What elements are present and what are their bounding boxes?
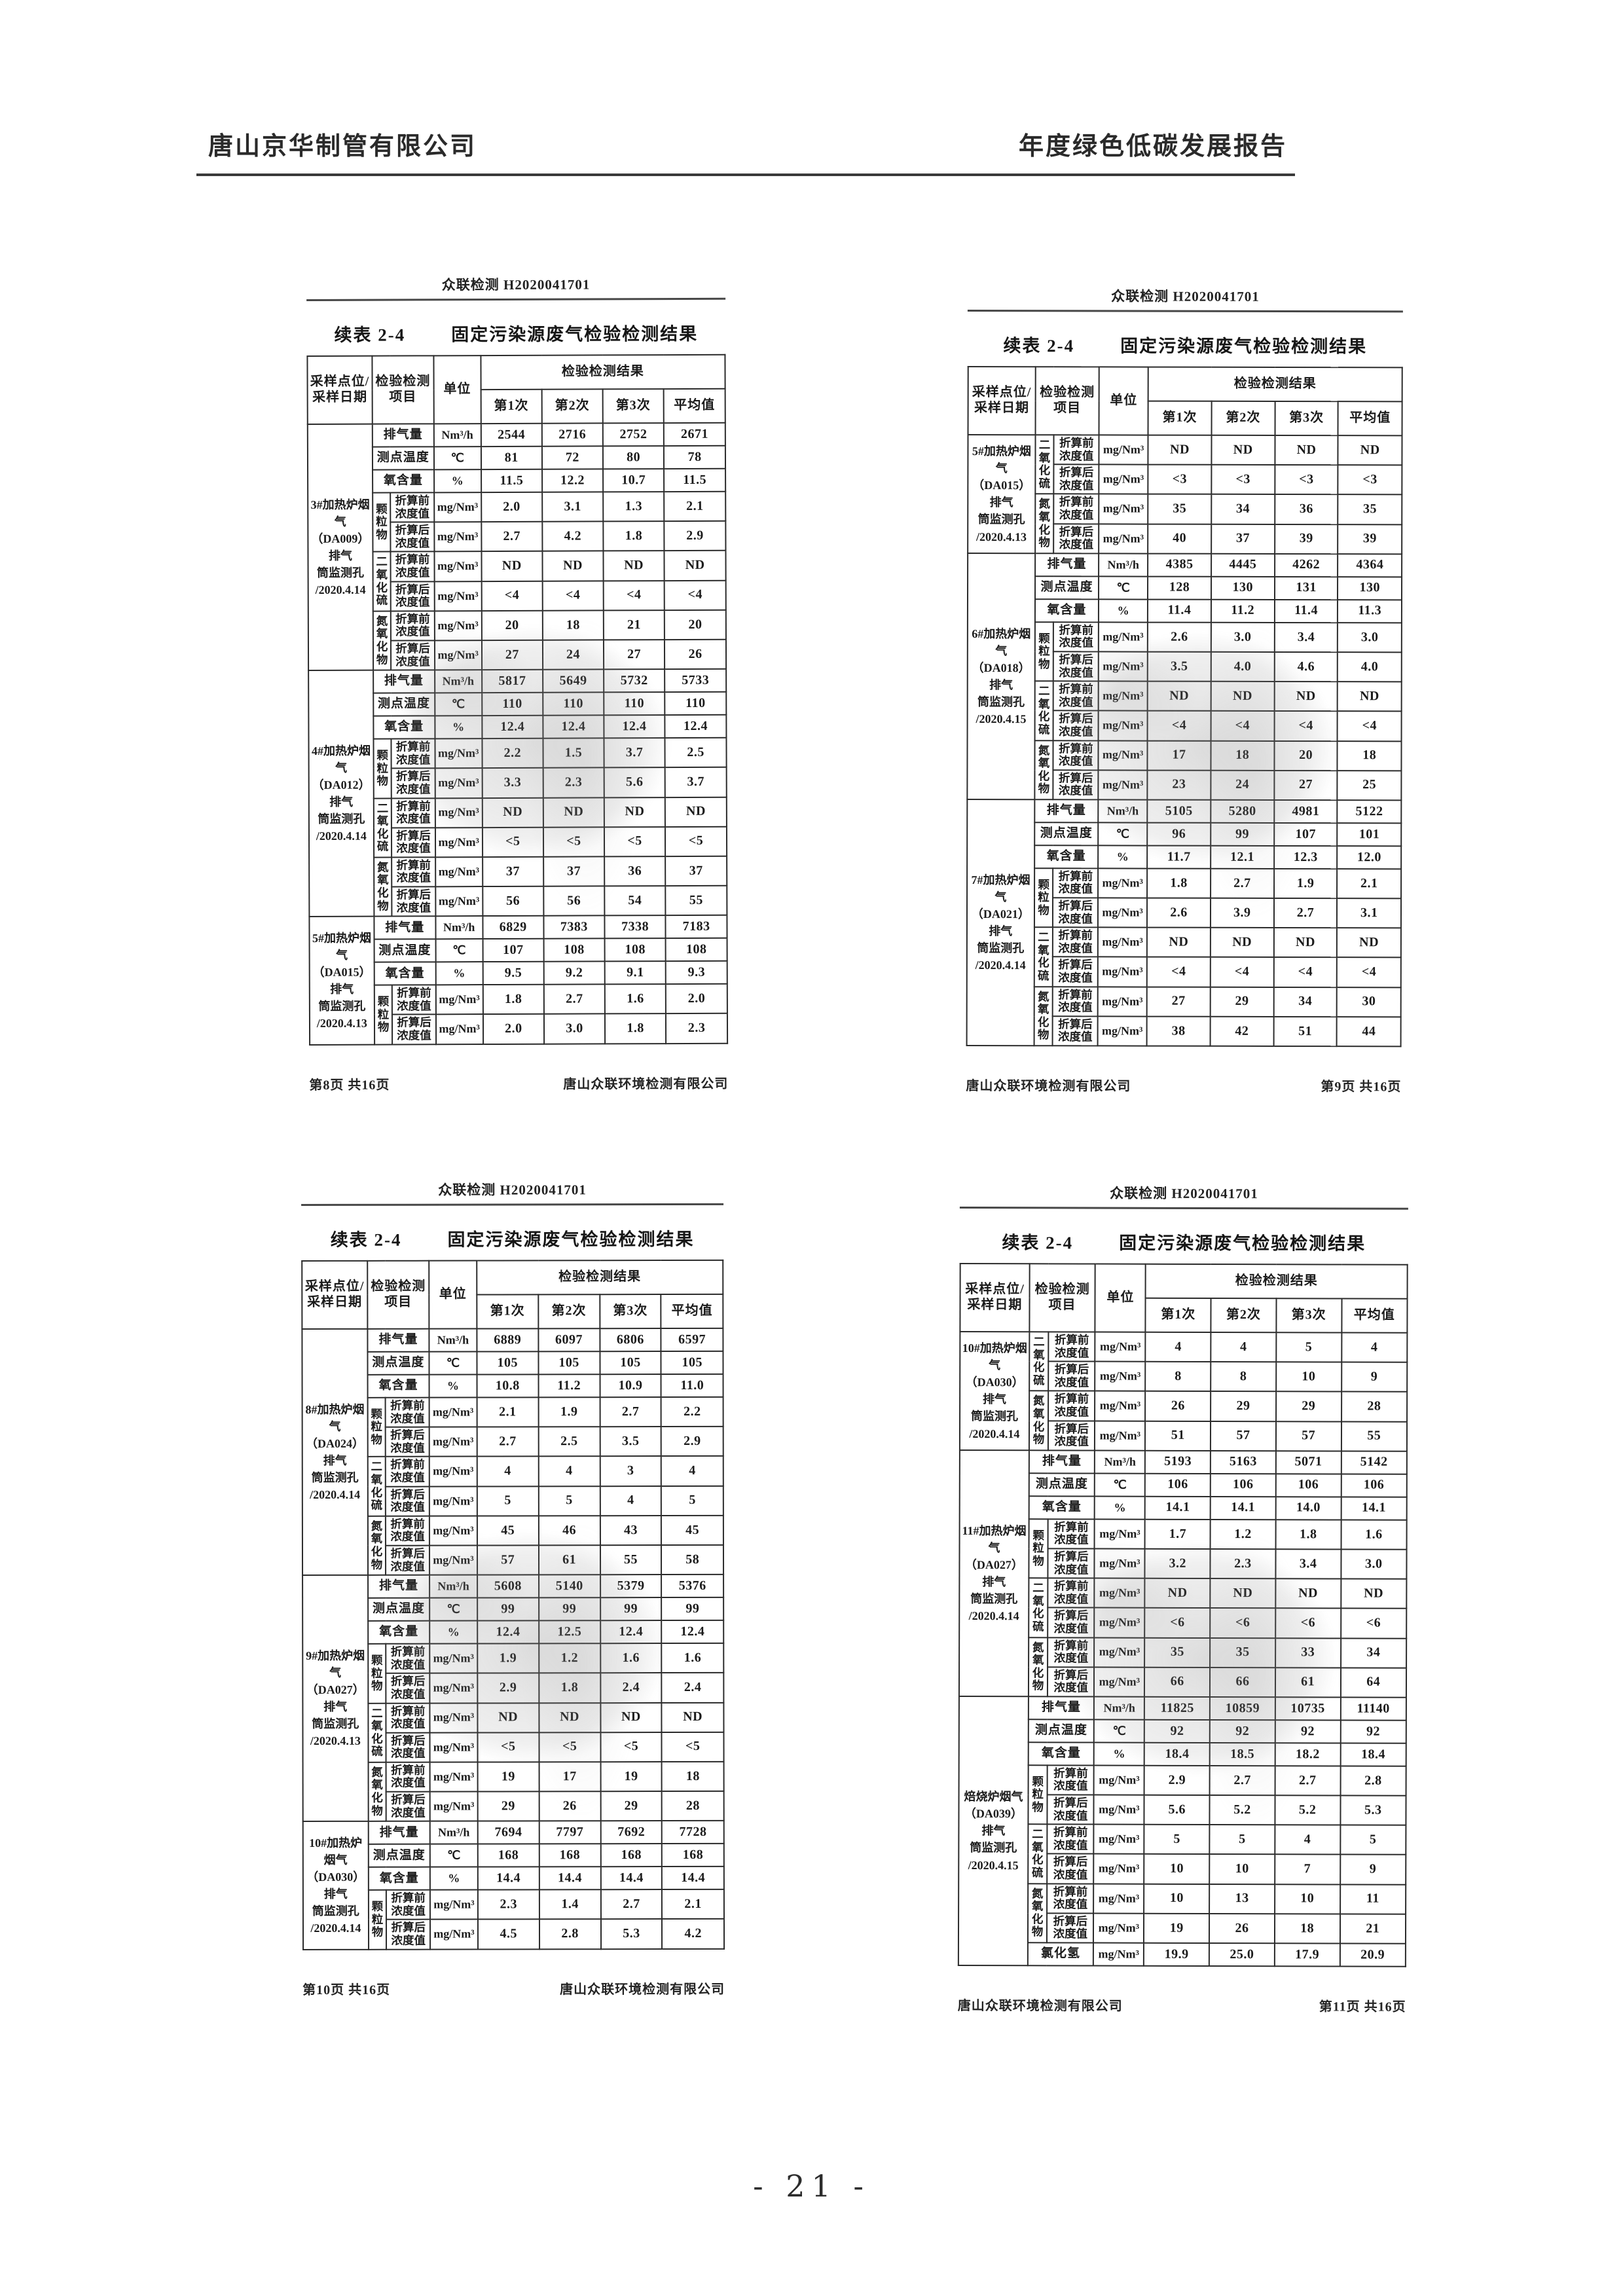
item-cell: 氧含量: [368, 1867, 430, 1890]
value-cell: 5.6: [604, 767, 665, 797]
sampling-point-cell: 5#加热炉烟气 （DA015）排气 筒监测孔 /2020.4.13: [968, 435, 1035, 553]
value-cell: 110: [543, 693, 604, 716]
value-cell: 5.2: [1275, 1795, 1340, 1825]
value-cell: <6: [1145, 1608, 1211, 1637]
value-cell: 2544: [481, 424, 542, 446]
table-caption: 续表 2-4固定污染源废气检验检测结果: [306, 319, 725, 346]
pollutant-group-cell: 二氧化硫: [1035, 435, 1054, 494]
unit-cell: mg/Nm³: [1098, 928, 1147, 957]
item-cell: 折算前 浓度值: [1048, 1765, 1094, 1795]
value-cell: 9: [1341, 1362, 1408, 1392]
pollutant-group-cell: 氮氧化物: [1028, 1884, 1048, 1942]
value-cell: 2.9: [661, 1427, 723, 1456]
table-head: 采样点位/ 采样日期检验检测 项目单位检验检测结果第1次第2次第3次平均值: [968, 367, 1402, 435]
item-cell: 折算后 浓度值: [386, 1486, 429, 1516]
value-cell: 1.6: [600, 1643, 662, 1673]
unit-cell: mg/Nm³: [429, 1398, 477, 1427]
value-cell: 2.7: [600, 1397, 661, 1427]
value-cell: 12.4: [482, 716, 543, 738]
table-row: 4#加热炉烟气 （DA012）排气 筒监测孔 /2020.4.14排气量Nm³/…: [308, 669, 726, 693]
item-cell: 折算前 浓度值: [1053, 928, 1098, 957]
unit-cell: mg/Nm³: [1095, 1332, 1146, 1362]
value-cell: 5: [1276, 1332, 1341, 1362]
value-cell: ND: [1274, 682, 1338, 711]
value-cell: 12.0: [1338, 846, 1402, 869]
value-cell: 3.1: [1337, 898, 1401, 928]
value-cell: 23: [1147, 770, 1211, 799]
item-cell: 折算前 浓度值: [1053, 681, 1099, 710]
detection-results-table: 采样点位/ 采样日期检验检测 项目单位检验检测结果第1次第2次第3次平均值5#加…: [966, 366, 1403, 1047]
value-cell: 58: [661, 1545, 723, 1575]
item-cell: 折算前 浓度值: [386, 1516, 429, 1545]
table-caption: 续表 2-4固定污染源废气检验检测结果: [301, 1225, 723, 1251]
value-cell: 2.7: [481, 522, 542, 552]
item-cell: 折算前 浓度值: [1053, 868, 1098, 898]
item-cell: 折算前 浓度值: [1048, 1519, 1095, 1548]
value-cell: 17.9: [1275, 1943, 1340, 1966]
item-cell: 折算前 浓度值: [1049, 1332, 1095, 1361]
table-label: 续表 2-4: [1002, 1228, 1073, 1254]
value-cell: 14.1: [1211, 1497, 1276, 1520]
value-cell: 20: [482, 610, 543, 640]
value-cell: 5.6: [1144, 1795, 1210, 1825]
unit-cell: mg/Nm³: [1098, 898, 1147, 927]
value-cell: 2.6: [1147, 898, 1211, 928]
value-cell: 10: [1144, 1884, 1209, 1913]
value-cell: 57: [1211, 1421, 1276, 1451]
value-cell: 99: [1211, 823, 1274, 846]
value-cell: 25: [1338, 771, 1402, 800]
item-cell: 折算后 浓度值: [1047, 1913, 1093, 1942]
value-cell: 106: [1145, 1473, 1211, 1496]
value-cell: ND: [600, 1703, 662, 1732]
value-cell: 1.2: [1211, 1520, 1276, 1549]
item-cell: 氧含量: [373, 716, 435, 738]
doc-ref: 众联检测 H2020041701: [968, 285, 1403, 312]
scan-footer: 第10页 共16页唐山众联环境检测有限公司: [302, 1978, 725, 1997]
value-cell: 3.0: [544, 1014, 605, 1044]
value-cell: ND: [1148, 435, 1212, 465]
value-cell: 12.5: [539, 1620, 600, 1643]
table-head: 采样点位/ 采样日期检验检测 项目单位检验检测结果第1次第2次第3次平均值: [960, 1264, 1407, 1333]
table-row: 9#加热炉烟气 （DA027）排气 筒监测孔 /2020.4.13排气量Nm³/…: [302, 1575, 723, 1598]
value-cell: 6806: [600, 1328, 661, 1351]
header-run: 第3次: [603, 389, 664, 423]
value-cell: <4: [1211, 711, 1274, 740]
footer-left: 唐山众联环境检测有限公司: [958, 1995, 1123, 2014]
header-rule: [196, 173, 1295, 176]
value-cell: 26: [1209, 1914, 1275, 1943]
item-cell: 折算后 浓度值: [1053, 1016, 1098, 1046]
pollutant-group-cell: 颗粒物: [369, 1890, 387, 1949]
value-cell: 4: [1275, 1825, 1340, 1855]
value-cell: 66: [1144, 1667, 1210, 1696]
pollutant-group-cell: 二氧化硫: [1028, 1825, 1048, 1884]
unit-cell: mg/Nm³: [1098, 868, 1147, 898]
sampling-point-cell: 6#加热炉烟气 （DA018）排气 筒监测孔 /2020.4.15: [967, 553, 1035, 799]
header-row: 采样点位/ 采样日期检验检测 项目单位检验检测结果: [302, 1260, 723, 1295]
header-item: 检验检测 项目: [367, 1261, 429, 1329]
scan-block-page10: 众联检测 H2020041701续表 2-4固定污染源废气检验检测结果采样点位/…: [301, 1179, 725, 1998]
value-cell: 14.1: [1341, 1497, 1407, 1520]
value-cell: 5608: [477, 1575, 539, 1597]
pollutant-group-cell: 二氧化硫: [374, 798, 392, 857]
value-cell: ND: [543, 797, 604, 828]
value-cell: 56: [543, 886, 604, 916]
value-cell: 18: [1211, 740, 1274, 770]
value-cell: 29: [477, 1791, 539, 1821]
value-cell: 3.7: [604, 738, 665, 768]
value-cell: 5817: [482, 670, 543, 693]
value-cell: 11.2: [538, 1374, 600, 1397]
value-cell: 105: [538, 1351, 600, 1374]
unit-cell: ℃: [1095, 1473, 1145, 1496]
value-cell: 6889: [477, 1328, 538, 1351]
value-cell: 2.7: [600, 1889, 662, 1919]
value-cell: 19: [600, 1762, 662, 1791]
unit-cell: %: [1098, 845, 1147, 868]
table-row: 8#加热炉烟气 （DA024）排气 筒监测孔 /2020.4.14排气量Nm³/…: [302, 1328, 723, 1352]
item-cell: 折算后 浓度值: [1048, 1608, 1094, 1637]
value-cell: 25.0: [1209, 1943, 1275, 1966]
value-cell: 5649: [543, 670, 604, 693]
sampling-point-cell: 焙烧炉烟气 （DA039）排气 筒监测孔 /2020.4.15: [958, 1696, 1029, 1965]
value-cell: <6: [1341, 1609, 1407, 1638]
value-cell: 168: [539, 1844, 600, 1867]
value-cell: 12.4: [604, 715, 665, 738]
value-cell: ND: [1147, 928, 1211, 957]
table-label: 续表 2-4: [331, 1226, 402, 1251]
value-cell: 5732: [604, 669, 665, 692]
unit-cell: mg/Nm³: [434, 611, 481, 640]
item-cell: 折算前 浓度值: [386, 1457, 429, 1486]
table-caption: 续表 2-4固定污染源废气检验检测结果: [968, 331, 1403, 357]
table-title: 固定污染源废气检验检测结果: [1120, 331, 1367, 357]
item-cell: 测点温度: [1029, 1473, 1095, 1496]
value-cell: 36: [1275, 494, 1338, 524]
scan-block-page8: 众联检测 H2020041701续表 2-4固定污染源废气检验检测结果采样点位/…: [306, 274, 728, 1093]
value-cell: ND: [1337, 928, 1401, 957]
value-cell: 20.9: [1340, 1944, 1406, 1967]
value-cell: 27: [1147, 987, 1211, 1016]
item-cell: 折算后 浓度值: [1048, 1667, 1094, 1696]
item-cell: 排气量: [367, 1329, 429, 1352]
item-cell: 折算后 浓度值: [1053, 957, 1098, 987]
pollutant-group-cell: 氮氧化物: [1029, 1637, 1048, 1696]
value-cell: 4262: [1275, 554, 1338, 577]
value-cell: 26: [1145, 1391, 1211, 1421]
unit-cell: ℃: [429, 1598, 477, 1621]
item-cell: 排气量: [373, 424, 434, 446]
value-cell: 5: [1144, 1825, 1210, 1854]
footer-left: 唐山众联环境检测有限公司: [966, 1075, 1131, 1095]
unit-cell: mg/Nm³: [435, 640, 482, 670]
value-cell: 5: [539, 1486, 600, 1516]
value-cell: <4: [543, 581, 604, 611]
value-cell: 55: [1341, 1421, 1407, 1451]
item-cell: 折算后 浓度值: [1054, 464, 1099, 494]
value-cell: 105: [661, 1351, 723, 1374]
header-row: 采样点位/ 采样日期检验检测 项目单位检验检测结果: [968, 367, 1402, 401]
unit-cell: mg/Nm³: [1093, 1913, 1144, 1942]
unit-cell: Nm³/h: [1098, 799, 1147, 822]
unit-cell: mg/Nm³: [435, 985, 483, 1014]
unit-cell: mg/Nm³: [1094, 1667, 1144, 1696]
sampling-point-cell: 9#加热炉烟气 （DA027）排气 筒监测孔 /2020.4.13: [302, 1575, 368, 1821]
item-cell: 排气量: [1035, 553, 1099, 576]
item-cell: 折算前 浓度值: [1048, 1825, 1094, 1854]
value-cell: 18.4: [1144, 1743, 1210, 1766]
value-cell: 2.8: [1340, 1766, 1406, 1795]
value-cell: 4: [538, 1457, 600, 1486]
report-page: 唐山京华制管有限公司 年度绿色低碳发展报告 众联检测 H2020041701续表…: [0, 0, 1623, 2296]
unit-cell: mg/Nm³: [1098, 987, 1147, 1016]
value-cell: 5733: [665, 669, 726, 692]
table-head: 采样点位/ 采样日期检验检测 项目单位检验检测结果第1次第2次第3次平均值: [307, 355, 725, 424]
value-cell: 14.0: [1275, 1497, 1341, 1520]
value-cell: <3: [1148, 465, 1211, 494]
value-cell: 110: [665, 692, 726, 715]
value-cell: 4: [1341, 1333, 1408, 1362]
item-cell: 折算前 浓度值: [391, 552, 435, 581]
unit-cell: ℃: [1098, 822, 1147, 845]
pollutant-group-cell: 二氧化硫: [373, 552, 391, 611]
value-cell: 1.8: [1275, 1520, 1341, 1549]
item-cell: 折算后 浓度值: [392, 1015, 436, 1044]
pollutant-group-cell: 二氧化硫: [1034, 927, 1053, 986]
value-cell: 4.5: [478, 1920, 539, 1949]
value-cell: 3.9: [1211, 898, 1274, 928]
sampling-point-cell: 3#加热炉烟气 （DA009）排气 筒监测孔 /2020.4.14: [308, 424, 373, 670]
unit-cell: mg/Nm³: [435, 857, 483, 886]
value-cell: 108: [543, 939, 604, 962]
item-cell: 折算前 浓度值: [386, 1644, 430, 1673]
value-cell: ND: [1341, 1579, 1407, 1609]
report-title: 年度绿色低碳发展报告: [1019, 126, 1287, 162]
unit-cell: Nm³/h: [429, 1329, 477, 1352]
sampling-point-cell: 7#加热炉烟气 （DA021）排气 筒监测孔 /2020.4.14: [967, 799, 1035, 1046]
value-cell: 2671: [664, 423, 725, 446]
item-cell: 排气量: [368, 1575, 430, 1598]
value-cell: 27: [1274, 771, 1338, 800]
unit-cell: mg/Nm³: [1093, 1943, 1144, 1966]
header-sampling-point: 采样点位/ 采样日期: [968, 367, 1036, 435]
value-cell: 4981: [1274, 800, 1338, 823]
header-unit: 单位: [1099, 367, 1148, 435]
header-run: 平均值: [664, 389, 725, 423]
header-run: 第2次: [538, 1294, 600, 1328]
value-cell: 46: [539, 1516, 600, 1545]
item-cell: 折算前 浓度值: [391, 611, 435, 640]
value-cell: 57: [1276, 1421, 1341, 1451]
value-cell: 168: [662, 1844, 724, 1867]
item-cell: 折算后 浓度值: [1047, 1854, 1093, 1884]
page-header: 唐山京华制管有限公司 年度绿色低碳发展报告: [208, 126, 1287, 162]
item-cell: 排气量: [1034, 799, 1099, 822]
value-cell: 12.2: [542, 469, 603, 492]
value-cell: ND: [604, 797, 665, 828]
value-cell: 14.4: [662, 1867, 724, 1889]
sampling-point-cell: 8#加热炉烟气 （DA024）排气 筒监测孔 /2020.4.14: [302, 1329, 367, 1575]
value-cell: 12.3: [1274, 846, 1338, 869]
unit-cell: mg/Nm³: [435, 828, 483, 857]
item-cell: 折算前 浓度值: [386, 1703, 430, 1732]
unit-cell: mg/Nm³: [429, 1644, 477, 1673]
unit-cell: mg/Nm³: [435, 738, 482, 768]
value-cell: 45: [477, 1516, 539, 1545]
value-cell: ND: [539, 1703, 600, 1732]
pollutant-group-cell: 二氧化硫: [1029, 1578, 1048, 1637]
value-cell: 101: [1338, 823, 1402, 846]
value-cell: 11.2: [1211, 600, 1275, 623]
value-cell: 28: [1341, 1392, 1408, 1421]
value-cell: 18.2: [1275, 1743, 1340, 1766]
unit-cell: mg/Nm³: [434, 492, 481, 522]
value-cell: ND: [1210, 1578, 1275, 1608]
item-cell: 折算后 浓度值: [1048, 1795, 1094, 1824]
pollutant-group-cell: 氮氧化物: [1034, 740, 1053, 799]
item-cell: 折算前 浓度值: [1053, 494, 1099, 524]
unit-cell: mg/Nm³: [434, 581, 481, 611]
value-cell: 2.7: [1275, 1766, 1340, 1795]
value-cell: <4: [1211, 957, 1274, 987]
table-row: 6#加热炉烟气 （DA018）排气 筒监测孔 /2020.4.15排气量Nm³/…: [968, 553, 1402, 577]
value-cell: 9.5: [483, 962, 543, 985]
value-cell: <4: [1274, 711, 1338, 740]
value-cell: 44: [1337, 1017, 1401, 1046]
item-cell: 折算前 浓度值: [392, 738, 435, 768]
value-cell: 4364: [1338, 554, 1402, 577]
value-cell: 3.2: [1145, 1549, 1211, 1578]
footer-left: 第10页 共16页: [302, 1978, 390, 1997]
pollutant-group-cell: 氮氧化物: [1029, 1391, 1049, 1450]
item-cell: 折算后 浓度值: [1053, 711, 1099, 740]
value-cell: 3.5: [1148, 652, 1211, 682]
pollutant-group-cell: 氮氧化物: [373, 611, 392, 670]
unit-cell: mg/Nm³: [1095, 1519, 1145, 1548]
unit-cell: Nm³/h: [1095, 1450, 1145, 1473]
value-cell: 2716: [542, 423, 603, 446]
value-cell: 11.4: [1148, 599, 1211, 622]
value-cell: 24: [1211, 770, 1274, 799]
unit-cell: mg/Nm³: [434, 551, 481, 581]
value-cell: 6829: [483, 916, 543, 939]
footer-right: 第9页 共16页: [1321, 1076, 1401, 1095]
value-cell: 51: [1273, 1017, 1337, 1046]
value-cell: 4: [1146, 1332, 1211, 1362]
value-cell: 5.3: [1340, 1796, 1406, 1825]
unit-cell: mg/Nm³: [430, 1890, 478, 1920]
value-cell: 5071: [1276, 1451, 1341, 1474]
company-name: 唐山京华制管有限公司: [208, 126, 477, 162]
value-cell: 108: [605, 938, 666, 961]
value-cell: 37: [665, 856, 727, 886]
header-unit: 单位: [433, 355, 481, 424]
item-cell: 折算前 浓度值: [386, 1890, 430, 1920]
value-cell: 64: [1340, 1667, 1406, 1697]
value-cell: 10.7: [603, 469, 664, 492]
unit-cell: mg/Nm³: [435, 886, 483, 916]
value-cell: 99: [600, 1597, 662, 1620]
value-cell: 4.0: [1211, 652, 1275, 682]
header-item: 检验检测 项目: [372, 355, 433, 424]
value-cell: 5122: [1338, 800, 1402, 823]
header-run: 第2次: [1211, 1298, 1277, 1332]
value-cell: 11.5: [664, 469, 725, 492]
unit-cell: mg/Nm³: [429, 1457, 477, 1486]
unit-cell: mg/Nm³: [434, 522, 481, 551]
value-cell: <5: [662, 1732, 724, 1762]
table-title: 固定污染源废气检验检测结果: [447, 1225, 694, 1251]
value-cell: 36: [604, 856, 665, 886]
item-cell: 测点温度: [373, 446, 434, 469]
value-cell: 11.0: [661, 1374, 723, 1397]
value-cell: 107: [1274, 823, 1338, 846]
value-cell: 27: [604, 640, 665, 670]
item-cell: 测点温度: [373, 693, 435, 716]
unit-cell: mg/Nm³: [1093, 1854, 1144, 1884]
value-cell: 2.7: [477, 1427, 538, 1457]
value-cell: 18.5: [1210, 1743, 1275, 1766]
header-run: 第1次: [1148, 401, 1212, 435]
value-cell: 5: [477, 1486, 539, 1516]
value-cell: 17: [1148, 740, 1211, 770]
value-cell: <6: [1210, 1608, 1275, 1637]
pollutant-group-cell: 颗粒物: [373, 493, 391, 552]
value-cell: 105: [477, 1351, 538, 1374]
value-cell: 19: [1144, 1914, 1209, 1943]
item-cell: 折算后 浓度值: [391, 640, 435, 670]
unit-cell: mg/Nm³: [430, 1762, 478, 1791]
value-cell: 2.2: [661, 1397, 723, 1427]
value-cell: 66: [1210, 1667, 1275, 1697]
value-cell: 10.8: [477, 1374, 538, 1397]
value-cell: 12.1: [1211, 846, 1274, 869]
table-row: 3#加热炉烟气 （DA009）排气 筒监测孔 /2020.4.14排气量Nm³/…: [308, 423, 725, 447]
unit-cell: Nm³/h: [430, 1821, 478, 1844]
value-cell: 42: [1210, 1017, 1273, 1046]
value-cell: 34: [1211, 494, 1275, 524]
table-row: 10#加热炉烟气 （DA030）排气 筒监测孔 /2020.4.14排气量Nm³…: [303, 1821, 724, 1844]
value-cell: 9: [1340, 1855, 1406, 1884]
value-cell: 4: [477, 1457, 539, 1486]
item-cell: 折算后 浓度值: [1048, 1548, 1095, 1578]
unit-cell: mg/Nm³: [1094, 1765, 1144, 1795]
value-cell: ND: [662, 1702, 724, 1732]
value-cell: 105: [600, 1351, 661, 1374]
value-cell: 106: [1276, 1474, 1341, 1497]
value-cell: ND: [1211, 928, 1274, 957]
unit-cell: %: [1095, 1496, 1145, 1519]
item-cell: 折算后 浓度值: [1053, 524, 1099, 553]
item-cell: 测点温度: [367, 1352, 429, 1375]
value-cell: 7183: [666, 915, 727, 938]
value-cell: 26: [665, 640, 726, 670]
value-cell: ND: [483, 797, 543, 828]
value-cell: <4: [1338, 711, 1402, 740]
unit-cell: mg/Nm³: [430, 1792, 478, 1821]
value-cell: 107: [483, 939, 543, 962]
value-cell: 26: [539, 1791, 600, 1821]
detection-results-table: 采样点位/ 采样日期检验检测 项目单位检验检测结果第1次第2次第3次平均值10#…: [958, 1263, 1408, 1967]
value-cell: 12.4: [543, 716, 604, 738]
value-cell: 56: [483, 886, 543, 917]
item-cell: 测点温度: [1035, 576, 1099, 599]
value-cell: 7797: [539, 1821, 600, 1844]
value-cell: 30: [1337, 987, 1401, 1017]
value-cell: <4: [665, 580, 726, 610]
value-cell: 2.4: [600, 1673, 662, 1702]
